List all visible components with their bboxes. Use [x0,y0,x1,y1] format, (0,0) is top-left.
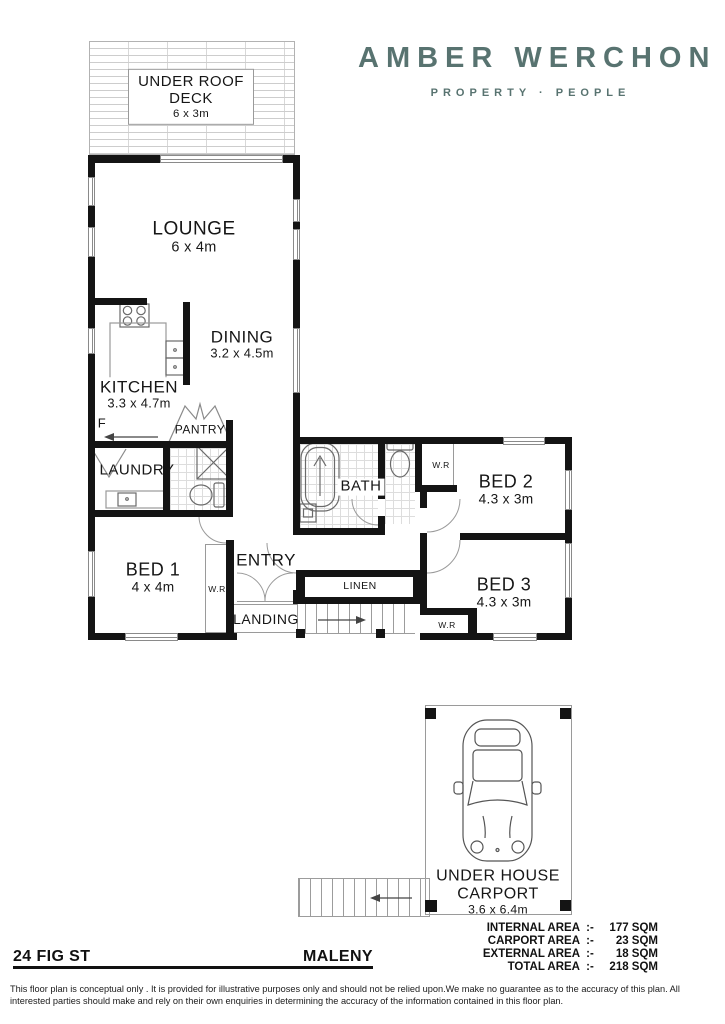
brand-name: AMBER WERCHON [358,42,703,75]
room-name: ENTRY [236,550,296,569]
wall-segment [178,633,237,640]
room-name: LOUNGE [152,218,235,239]
bed2-wr-divider [453,441,454,486]
room-label-bed2: BED 2 4.3 x 3m [479,471,534,506]
laundry-tub-icon [106,491,165,508]
room-name: BED 2 [479,471,534,491]
room-dims: 3.3 x 4.7m [97,396,181,410]
wall-segment [283,155,300,163]
wall-segment [88,206,95,227]
wall-segment [88,597,95,640]
window [160,155,283,163]
room-name: BATH [338,479,385,496]
brand-logo: AMBER WERCHON PROPERTY · PEOPLE [358,42,703,99]
window [493,633,537,641]
area-label: INTERNAL AREA [483,922,580,934]
wall-segment [305,597,413,604]
area-separator: :- [584,922,596,934]
bed1-door-arc [199,516,226,543]
window [565,470,572,510]
entry-threshold [237,601,293,602]
disclaimer-text: This floor plan is conceptual only . It … [10,983,712,1007]
wall-segment [293,155,300,199]
window [565,543,572,598]
wall-segment [537,633,572,640]
wall-segment [293,437,503,444]
wall-segment [293,393,300,444]
toilet-tiles [385,444,415,524]
room-name: PANTRY [175,423,226,436]
room-dims: 4.3 x 3m [477,594,532,609]
address-row: 24 FIG ST MALENY [13,942,373,969]
room-label-wr-bed2: W.R [432,461,450,471]
brand-tagline: PROPERTY · PEOPLE [358,87,703,99]
wall-segment [415,437,422,492]
room-label-carport: UNDER HOUSE CARPORT 3.6 x 6.4m [431,867,565,916]
wall-segment [305,570,413,577]
wall-segment [545,437,572,444]
window [293,199,300,222]
room-name: LANDING [233,612,299,628]
room-label-lounge: LOUNGE 6 x 4m [152,218,235,255]
wall-segment [88,441,233,448]
room-label-bed3: BED 3 4.3 x 3m [477,574,532,609]
area-label: EXTERNAL AREA [483,948,580,960]
window [88,177,95,206]
wall-segment [460,533,572,540]
area-value: 177 SQM [600,922,658,934]
window [503,437,545,445]
room-name: BED 3 [477,574,532,594]
window [125,633,178,641]
area-value: 18 SQM [600,948,658,960]
entry-door-arc-right [265,573,293,601]
wall-segment [183,302,190,385]
area-separator: :- [584,961,596,973]
wall-segment [378,516,385,535]
window [88,328,95,354]
room-name: UNDER ROOF DECK [132,74,250,108]
room-dims: 3.2 x 4.5m [210,346,273,360]
wall-segment [88,633,125,640]
area-label: TOTAL AREA [483,961,580,973]
area-value: 218 SQM [600,961,658,973]
wall-segment [293,528,385,535]
room-label-bed1: BED 1 4 x 4m [126,559,181,594]
wall-segment [420,492,427,508]
room-label-kitchen: KITCHEN 3.3 x 4.7m [97,377,181,411]
suburb: MALENY [303,948,373,966]
wall-segment [226,420,233,517]
wall-segment [420,608,477,615]
room-label-landing: LANDING [233,612,299,628]
wall-segment [293,260,300,328]
kitchen-bench-icon [110,323,166,383]
room-dims: 6 x 4m [152,240,235,256]
kitchen-sink-icon [166,341,184,375]
window [88,551,95,597]
room-name: F [98,417,106,432]
area-value: 23 SQM [600,935,658,947]
room-name: W.R [208,585,226,595]
area-label: CARPORT AREA [483,935,580,947]
window [293,229,300,260]
room-name: KITCHEN [97,377,181,396]
window [88,227,95,257]
room-name: LAUNDRY [100,463,175,480]
wall-segment [88,298,147,305]
street-address: 24 FIG ST [13,948,90,966]
room-dims: 4 x 4m [126,579,181,594]
room-dims: 3.6 x 6.4m [431,903,565,917]
room-label-dining: DINING 3.2 x 4.5m [210,327,273,361]
wall-segment [293,444,300,535]
wall-segment [420,633,493,640]
wall-segment [293,222,300,229]
entry-door-arc-left [237,573,265,601]
wall-segment [565,598,572,640]
wall-segment [565,510,572,543]
room-name: LINEN [343,581,376,593]
wall-segment [420,533,427,540]
room-label-fridge: F [98,417,106,432]
room-name: W.R [438,621,456,631]
bed3-door-arc [427,540,460,573]
room-name: DINING [210,327,273,346]
room-name: UNDER HOUSE CARPORT [431,867,565,903]
wall-segment [88,155,160,163]
area-separator: :- [584,948,596,960]
wall-segment [413,570,422,604]
wall-segment [468,615,477,633]
area-summary: INTERNAL AREA :- 177 SQM CARPORT AREA :-… [483,922,658,973]
room-label-bath: BATH [338,479,385,496]
wall-segment [88,257,95,328]
room-name: W.R [432,461,450,471]
room-label-wr-bed1: W.R [208,585,226,595]
room-label-deck: UNDER ROOF DECK 6 x 3m [128,69,254,125]
window [293,328,300,393]
external-stairs [298,878,430,917]
room-label-linen: LINEN [343,581,376,593]
bed2-door-arc [427,499,460,532]
wall-segment [88,354,95,551]
room-label-pantry: PANTRY [175,423,226,436]
room-dims: 4.3 x 3m [479,491,534,506]
wall-segment [565,444,572,470]
wall-segment [415,485,457,492]
stove-icon [120,304,149,327]
wall-segment [293,590,300,604]
wall-segment [420,540,427,615]
wall-segment [88,155,95,177]
internal-stairs [305,604,415,634]
room-name: BED 1 [126,559,181,579]
wall-segment [88,510,233,517]
floor-plan-page: AMBER WERCHON PROPERTY · PEOPLE [0,0,725,1024]
wc-tiles [170,448,226,510]
wall-segment [296,570,305,604]
room-label-wr-bed3: W.R [438,621,456,631]
room-dims: 6 x 3m [132,107,250,120]
room-label-entry: ENTRY [236,550,296,569]
fridge-arrow-icon [104,433,158,441]
area-separator: :- [584,935,596,947]
room-label-laundry: LAUNDRY [100,463,175,480]
